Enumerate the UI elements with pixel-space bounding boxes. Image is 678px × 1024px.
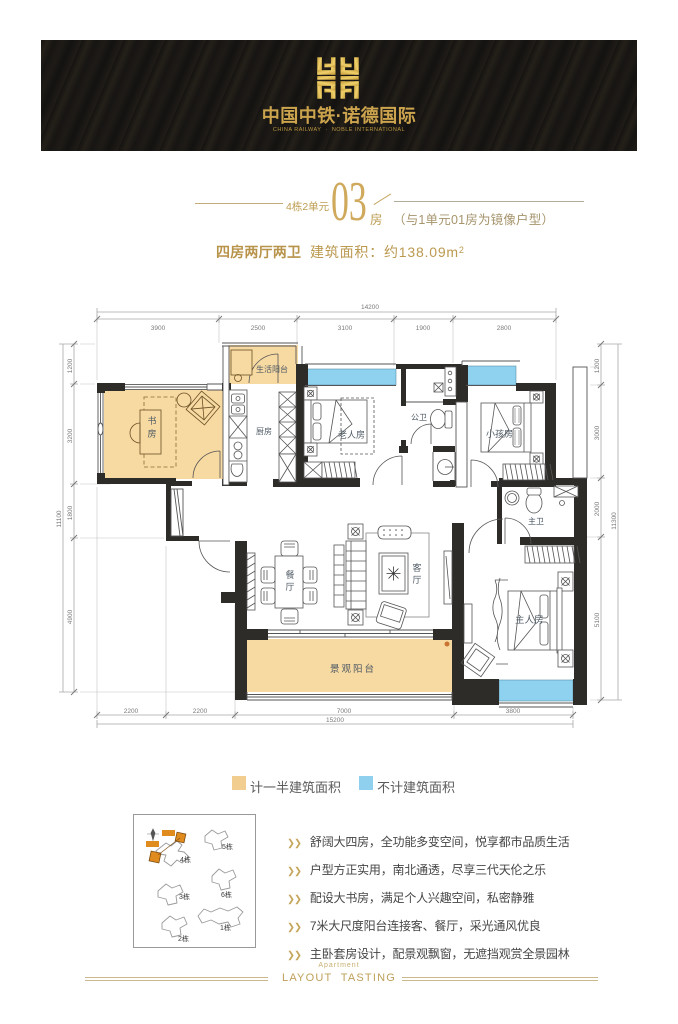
svg-text:2200: 2200 — [193, 708, 208, 715]
svg-text:11300: 11300 — [611, 512, 618, 530]
svg-text:1200: 1200 — [67, 358, 74, 373]
svg-text:6栋: 6栋 — [221, 890, 232, 899]
svg-text:5栋: 5栋 — [222, 842, 233, 851]
svg-text:4栋: 4栋 — [180, 855, 191, 864]
svg-text:厨房: 厨房 — [256, 426, 272, 436]
svg-text:客: 客 — [412, 562, 421, 573]
svg-text:2栋: 2栋 — [178, 934, 189, 943]
svg-text:厅: 厅 — [412, 575, 421, 585]
svg-text:1800: 1800 — [67, 505, 74, 520]
svg-text:14200: 14200 — [361, 304, 379, 311]
svg-text:房: 房 — [147, 428, 156, 439]
svg-text:15200: 15200 — [326, 717, 344, 724]
svg-text:3900: 3900 — [151, 325, 166, 332]
svg-text:2200: 2200 — [124, 708, 139, 715]
svg-text:2500: 2500 — [251, 325, 266, 332]
svg-text:2000: 2000 — [594, 501, 601, 516]
svg-text:餐: 餐 — [285, 569, 294, 580]
svg-text:景观阳台: 景观阳台 — [330, 663, 376, 675]
svg-text:3200: 3200 — [67, 428, 74, 443]
svg-text:主人房: 主人房 — [515, 614, 544, 626]
svg-text:生活阳台: 生活阳台 — [256, 364, 288, 374]
svg-text:1栋: 1栋 — [220, 923, 231, 932]
svg-text:3800: 3800 — [506, 708, 521, 715]
svg-text:1900: 1900 — [416, 325, 431, 332]
svg-text:7000: 7000 — [337, 708, 352, 715]
svg-text:厅: 厅 — [285, 582, 294, 592]
svg-text:主卫: 主卫 — [528, 516, 544, 526]
svg-text:3000: 3000 — [594, 425, 601, 440]
svg-text:4900: 4900 — [67, 609, 74, 624]
svg-text:3栋: 3栋 — [179, 892, 190, 901]
svg-text:11100: 11100 — [56, 510, 63, 527]
svg-text:1200: 1200 — [594, 358, 601, 373]
svg-text:5100: 5100 — [594, 612, 601, 627]
svg-text:小孩房: 小孩房 — [486, 428, 513, 439]
svg-text:老人房: 老人房 — [338, 429, 365, 440]
svg-text:2800: 2800 — [497, 325, 512, 332]
svg-text:书: 书 — [147, 416, 156, 426]
svg-text:公卫: 公卫 — [411, 413, 427, 422]
svg-text:3100: 3100 — [338, 325, 353, 332]
